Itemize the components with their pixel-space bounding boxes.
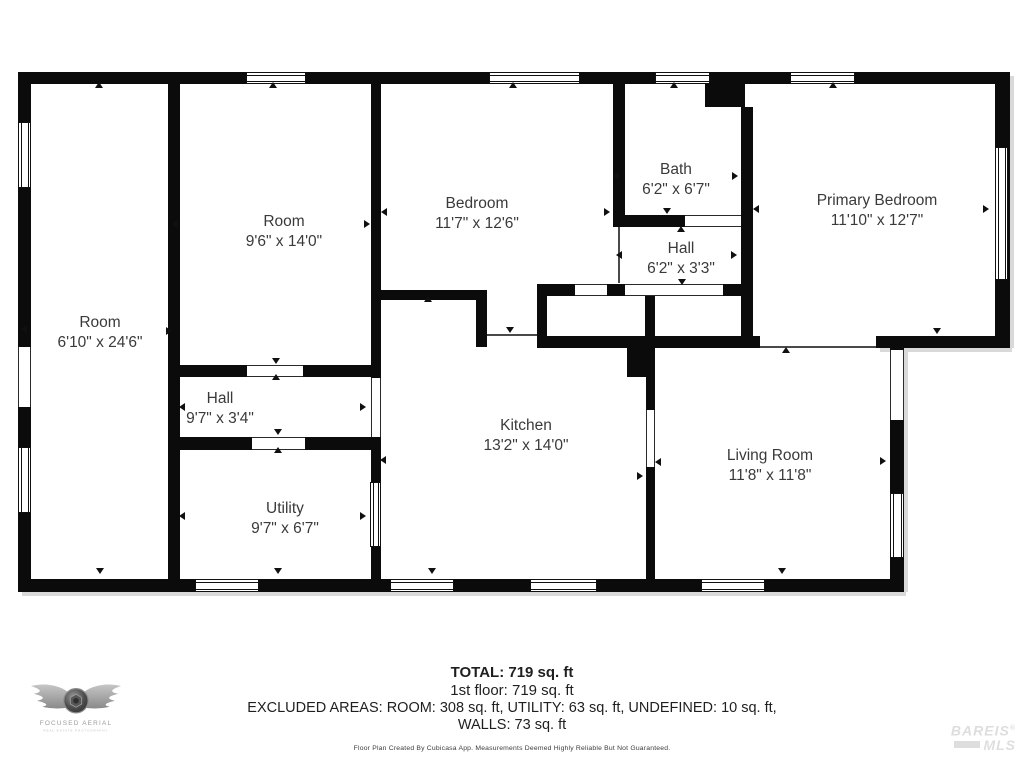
wall xyxy=(613,84,625,217)
measure-arrow-up xyxy=(424,296,432,302)
wall xyxy=(741,107,753,348)
wall xyxy=(180,437,252,450)
measure-arrow-down xyxy=(96,568,104,574)
wall xyxy=(876,336,1010,348)
measure-arrow-left xyxy=(655,458,661,466)
wall-shadow xyxy=(1010,76,1014,348)
door-opening xyxy=(890,350,904,420)
measure-arrow-up xyxy=(670,82,678,88)
measure-arrow-left xyxy=(380,456,386,464)
measure-arrow-right xyxy=(166,327,172,335)
wall xyxy=(607,284,625,296)
wall xyxy=(180,365,247,377)
wall xyxy=(537,336,760,348)
measure-arrow-down xyxy=(272,358,280,364)
window xyxy=(890,493,904,558)
measure-arrow-up xyxy=(677,226,685,232)
window xyxy=(390,579,454,592)
measure-arrow-right xyxy=(983,205,989,213)
measure-arrow-right xyxy=(604,208,610,216)
measure-arrow-up xyxy=(829,82,837,88)
window xyxy=(195,579,259,592)
measure-arrow-left xyxy=(21,325,27,333)
window xyxy=(790,72,855,84)
wall xyxy=(705,84,745,107)
floor-plan-canvas xyxy=(0,0,1024,620)
window xyxy=(530,579,597,592)
wall xyxy=(537,284,575,296)
passage-line xyxy=(487,334,537,336)
window xyxy=(370,482,381,547)
measure-arrow-left xyxy=(172,220,178,228)
measure-arrow-up xyxy=(509,82,517,88)
wall xyxy=(613,215,685,227)
measure-arrow-left xyxy=(753,205,759,213)
disclaimer-text: Floor Plan Created By Cubicasa App. Meas… xyxy=(0,745,1024,752)
door-opening xyxy=(646,410,655,467)
measure-arrow-left xyxy=(613,172,619,180)
wall xyxy=(627,345,655,377)
walls-area: WALLS: 73 sq. ft xyxy=(0,717,1024,734)
wall xyxy=(303,365,371,377)
door-opening xyxy=(371,378,381,437)
measure-arrow-right xyxy=(637,472,643,480)
wall xyxy=(646,377,655,410)
measure-arrow-up xyxy=(95,82,103,88)
window xyxy=(18,447,31,513)
window xyxy=(701,579,765,592)
measure-arrow-right xyxy=(360,512,366,520)
wall xyxy=(646,467,655,579)
measure-arrow-down xyxy=(274,568,282,574)
measure-arrow-down xyxy=(428,568,436,574)
wall-shadow xyxy=(22,592,906,596)
area-summary: TOTAL: 719 sq. ft 1st floor: 719 sq. ft … xyxy=(0,664,1024,752)
measure-arrow-right xyxy=(880,457,886,465)
wall xyxy=(18,579,904,592)
measure-arrow-up xyxy=(269,82,277,88)
measure-arrow-left xyxy=(616,251,622,259)
door-opening xyxy=(685,215,741,227)
measure-arrow-left xyxy=(179,512,185,520)
measure-arrow-right xyxy=(732,172,738,180)
wall xyxy=(371,547,381,580)
measure-arrow-right xyxy=(731,251,737,259)
door-opening xyxy=(575,284,607,296)
window xyxy=(489,72,580,84)
door-opening xyxy=(18,347,31,407)
measure-arrow-down xyxy=(678,279,686,285)
excluded-areas: EXCLUDED AREAS: ROOM: 308 sq. ft, UTILIT… xyxy=(0,700,1024,717)
window xyxy=(18,122,31,188)
door-opening xyxy=(625,284,723,296)
measure-arrow-down xyxy=(506,327,514,333)
measure-arrow-up xyxy=(782,347,790,353)
window xyxy=(655,72,710,84)
measure-arrow-right xyxy=(360,403,366,411)
measure-arrow-down xyxy=(663,208,671,214)
passage-line xyxy=(760,346,876,348)
wall xyxy=(371,84,381,378)
measure-arrow-left xyxy=(381,208,387,216)
wall xyxy=(305,437,371,450)
total-area: TOTAL: 719 sq. ft xyxy=(0,664,1024,682)
measure-arrow-right xyxy=(364,220,370,228)
window xyxy=(995,147,1008,280)
measure-arrow-left xyxy=(179,403,185,411)
measure-arrow-up xyxy=(274,447,282,453)
wall-shadow xyxy=(904,352,908,592)
wall xyxy=(890,420,904,494)
measure-arrow-down xyxy=(274,429,282,435)
measure-arrow-down xyxy=(933,328,941,334)
wall xyxy=(890,558,904,592)
measure-arrow-up xyxy=(272,374,280,380)
wall xyxy=(723,284,753,296)
first-floor-area: 1st floor: 719 sq. ft xyxy=(0,682,1024,700)
measure-arrow-down xyxy=(778,568,786,574)
wall xyxy=(476,290,487,347)
floor-plan-page: Room 6'10" x 24'6" Room 9'6" x 14'0" Bed… xyxy=(0,0,1024,762)
